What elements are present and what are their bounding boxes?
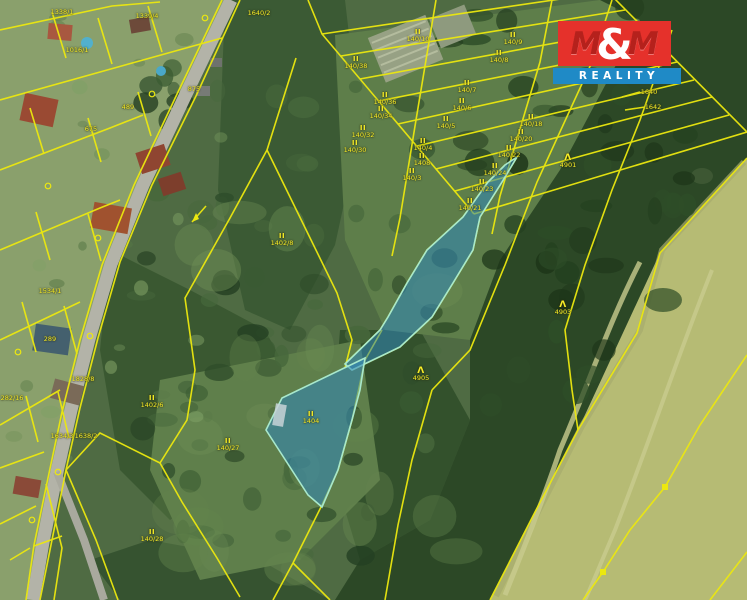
cadastral-map-image[interactable]: 1338/1 1339/4 1016/1 489 675 875 1640/2 …	[0, 0, 747, 600]
logo-wordmark: REALITY	[575, 70, 659, 82]
mm-reality-logo: M & M REALITY	[553, 21, 681, 84]
logo-wordmark-bar: REALITY	[553, 68, 681, 84]
aerial-photo-layer	[0, 0, 747, 600]
logo-mark: M & M	[558, 21, 671, 66]
logo-ampersand: &	[596, 21, 633, 66]
